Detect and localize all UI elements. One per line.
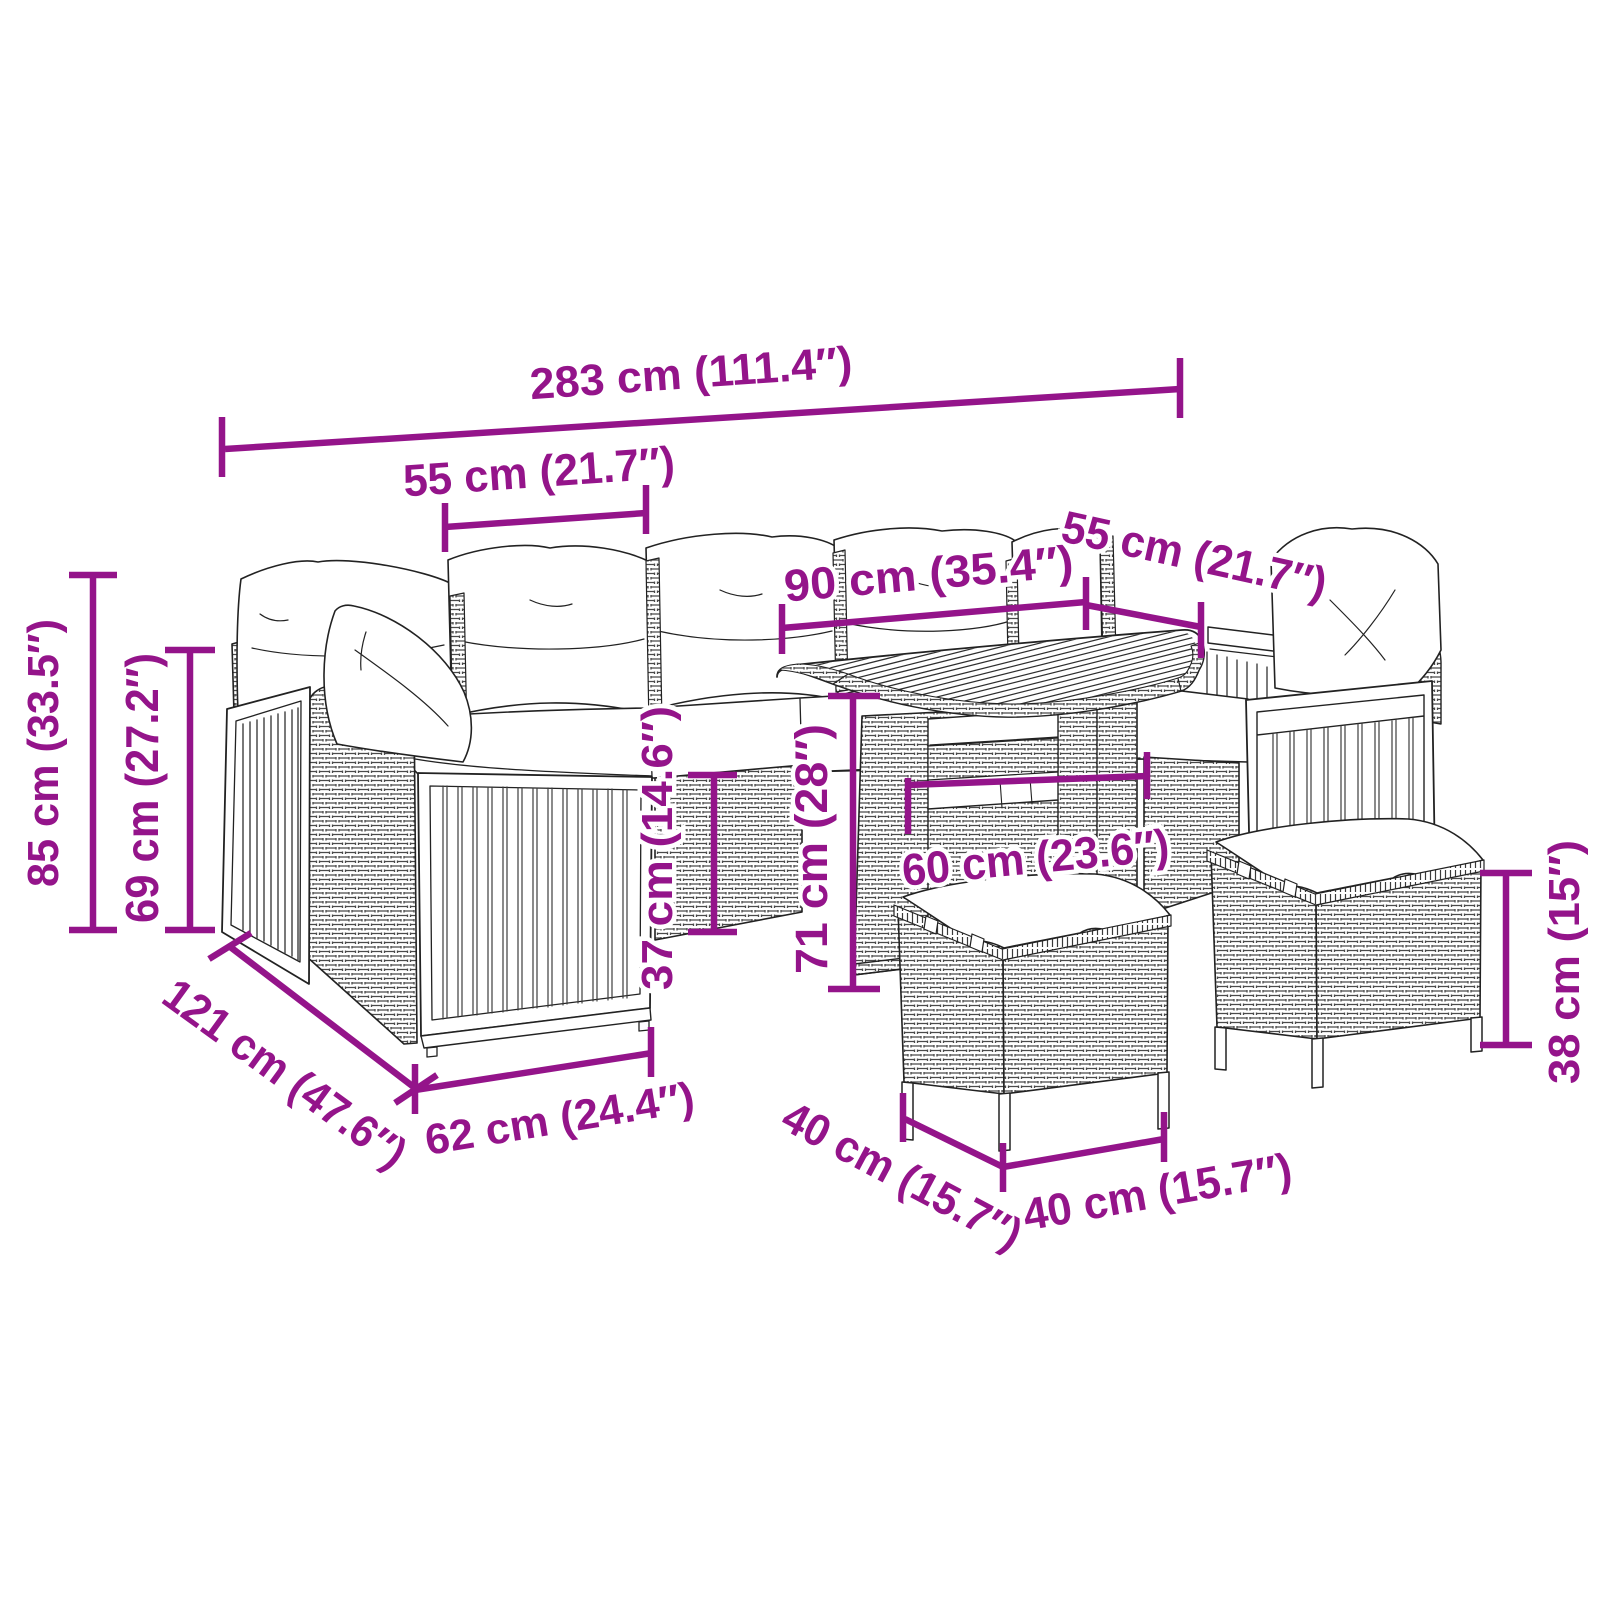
svg-text:85 cm (33.5″): 85 cm (33.5″) (19, 619, 68, 887)
svg-text:37 cm (14.6″): 37 cm (14.6″) (633, 706, 682, 990)
svg-text:71 cm (28″): 71 cm (28″) (786, 724, 837, 974)
svg-text:69 cm (27.2″): 69 cm (27.2″) (116, 653, 168, 923)
svg-text:38 cm (15″): 38 cm (15″) (1540, 840, 1589, 1084)
